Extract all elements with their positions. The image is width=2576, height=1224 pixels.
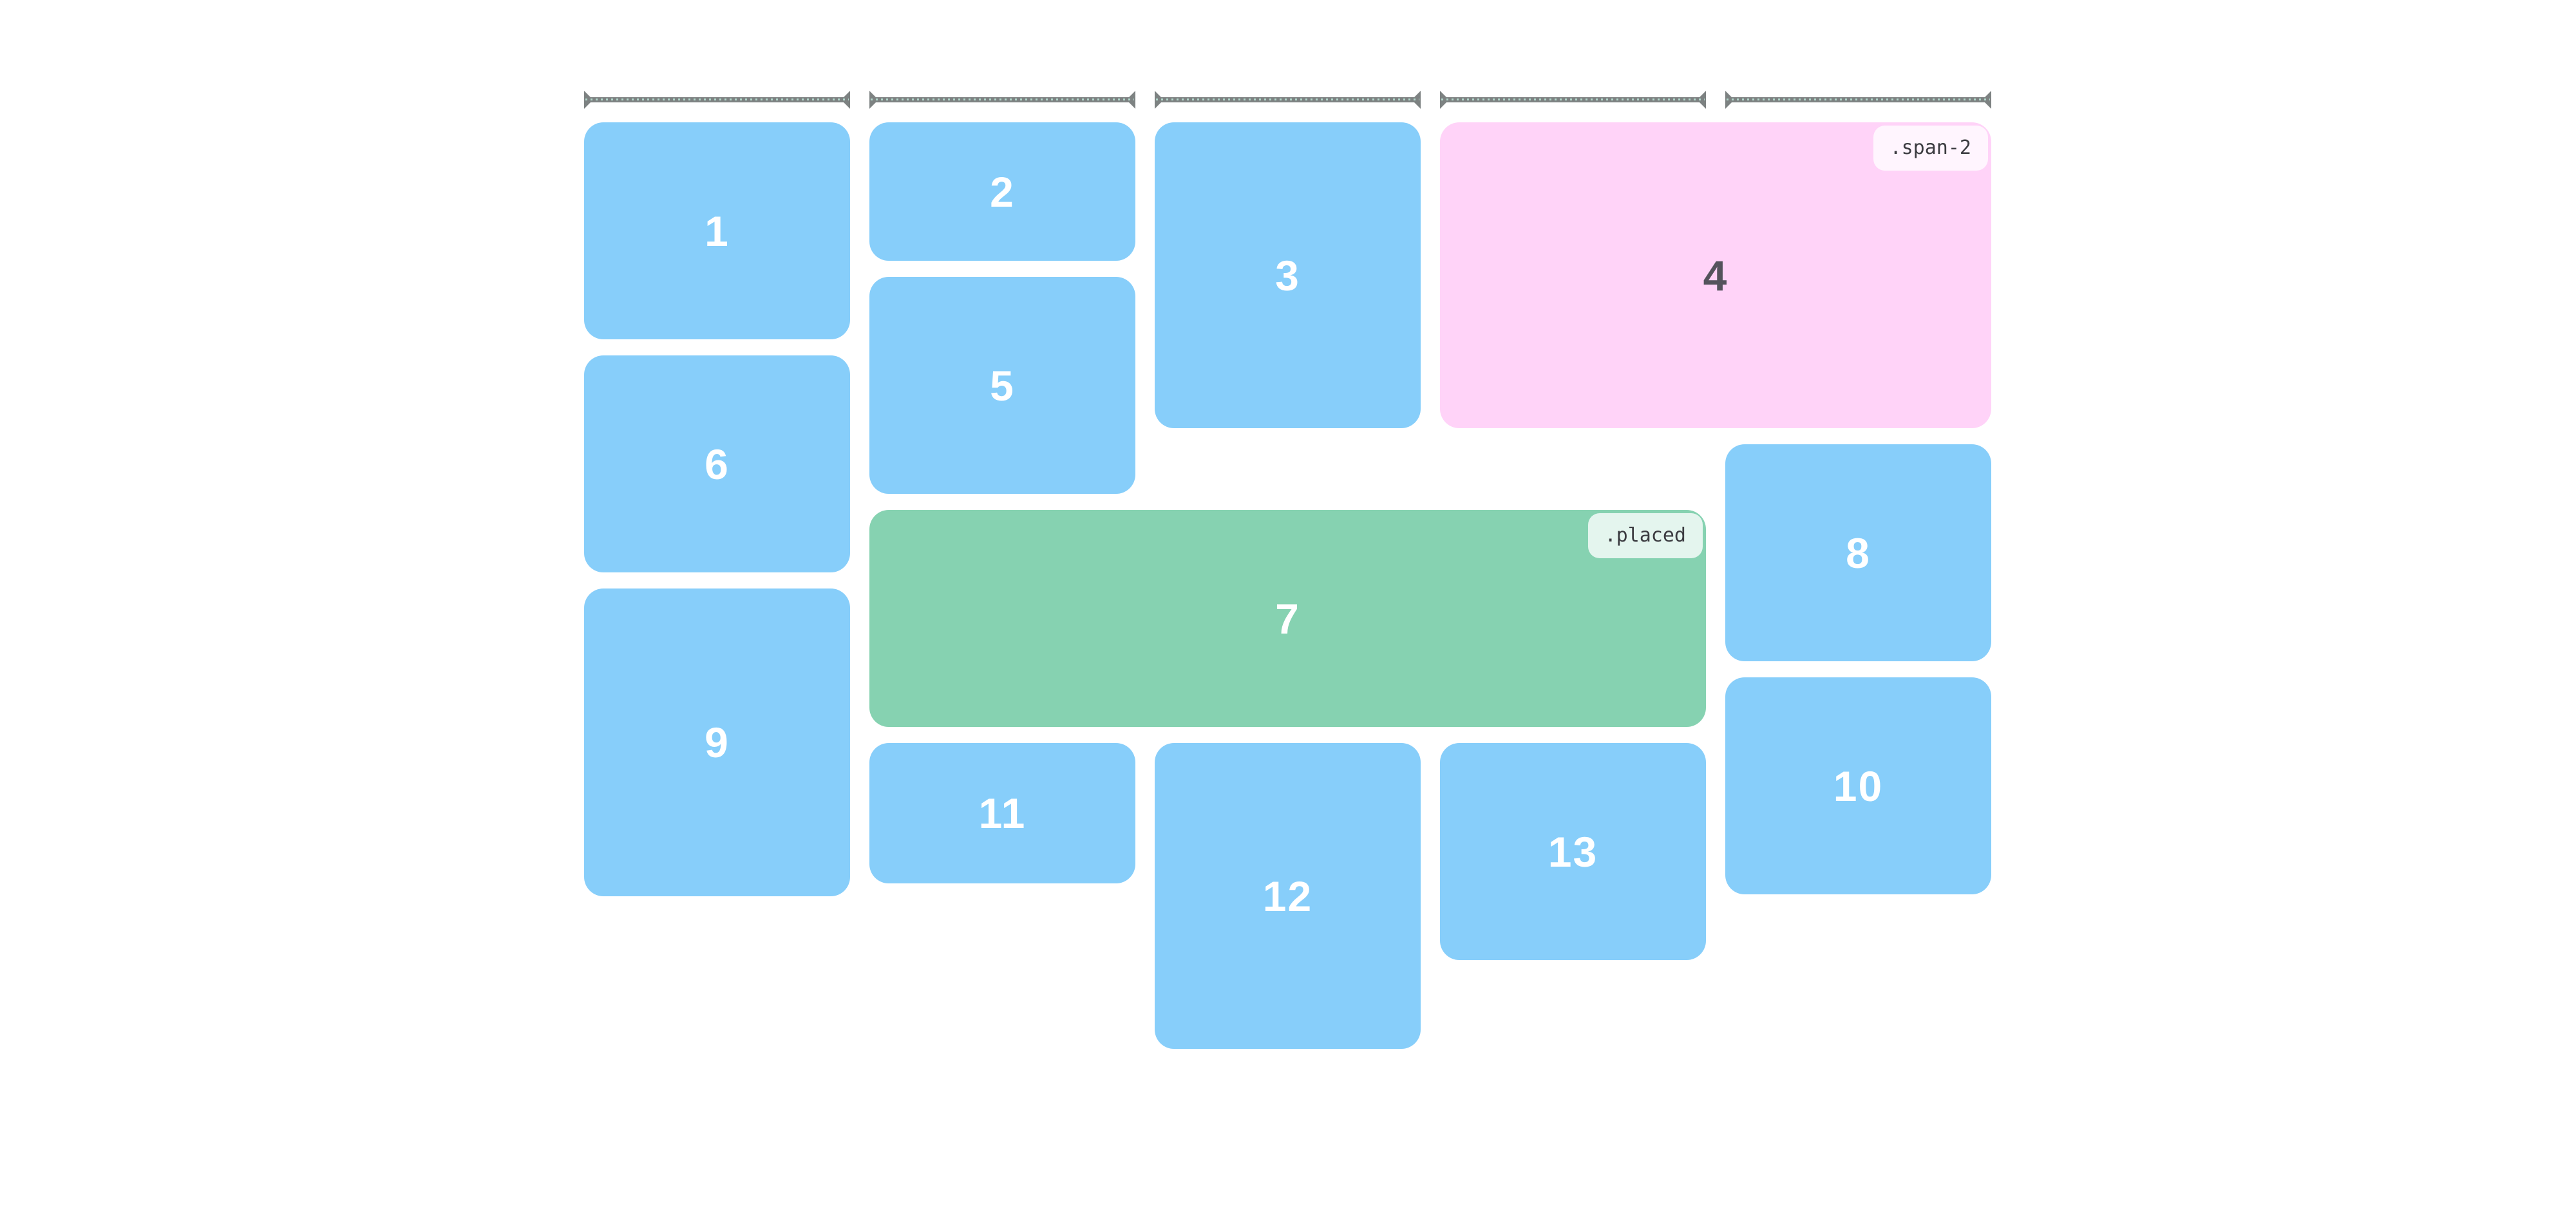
item-number: 7 [1275, 594, 1300, 643]
item-number: 9 [705, 718, 730, 767]
ruler-dotted-line [1441, 99, 1705, 100]
column-span-marker [1155, 91, 1421, 109]
masonry-item-12: 12 [1155, 743, 1421, 1049]
column-span-marker [869, 91, 1135, 109]
item-number: 4 [1703, 251, 1728, 300]
masonry-item-10: 10 [1725, 677, 1991, 894]
masonry-item-4: 4.span-2 [1440, 122, 1991, 428]
item-number: 1 [705, 207, 730, 256]
item-class-badge: .span-2 [1873, 126, 1988, 171]
column-span-marker [1725, 91, 1991, 109]
item-number: 3 [1275, 251, 1300, 300]
masonry-item-6: 6 [584, 355, 850, 572]
item-number: 12 [1263, 872, 1312, 921]
item-number: 8 [1846, 529, 1871, 578]
masonry-item-3: 3 [1155, 122, 1421, 428]
column-span-marker [584, 91, 850, 109]
masonry-item-8: 8 [1725, 444, 1991, 661]
ruler-dotted-line [585, 99, 849, 100]
item-number: 5 [990, 361, 1015, 410]
masonry-item-11: 11 [869, 743, 1135, 883]
item-class-badge: .placed [1588, 513, 1703, 558]
column-span-marker [1440, 91, 1706, 109]
item-number: 2 [990, 167, 1015, 216]
item-number: 6 [705, 440, 730, 489]
item-number: 13 [1548, 827, 1598, 876]
masonry-item-5: 5 [869, 277, 1135, 494]
masonry-item-2: 2 [869, 122, 1135, 261]
masonry-grid-demo: 1234.span-2567.placed8910111213 [0, 0, 2576, 1224]
ruler-dotted-line [1156, 99, 1419, 100]
masonry-item-9: 9 [584, 588, 850, 896]
masonry-item-1: 1 [584, 122, 850, 339]
masonry-item-7: 7.placed [869, 510, 1706, 727]
ruler-dotted-line [1727, 99, 1990, 100]
item-number: 11 [979, 789, 1027, 838]
masonry-item-13: 13 [1440, 743, 1706, 960]
ruler-dotted-line [871, 99, 1134, 100]
item-number: 10 [1833, 762, 1883, 811]
